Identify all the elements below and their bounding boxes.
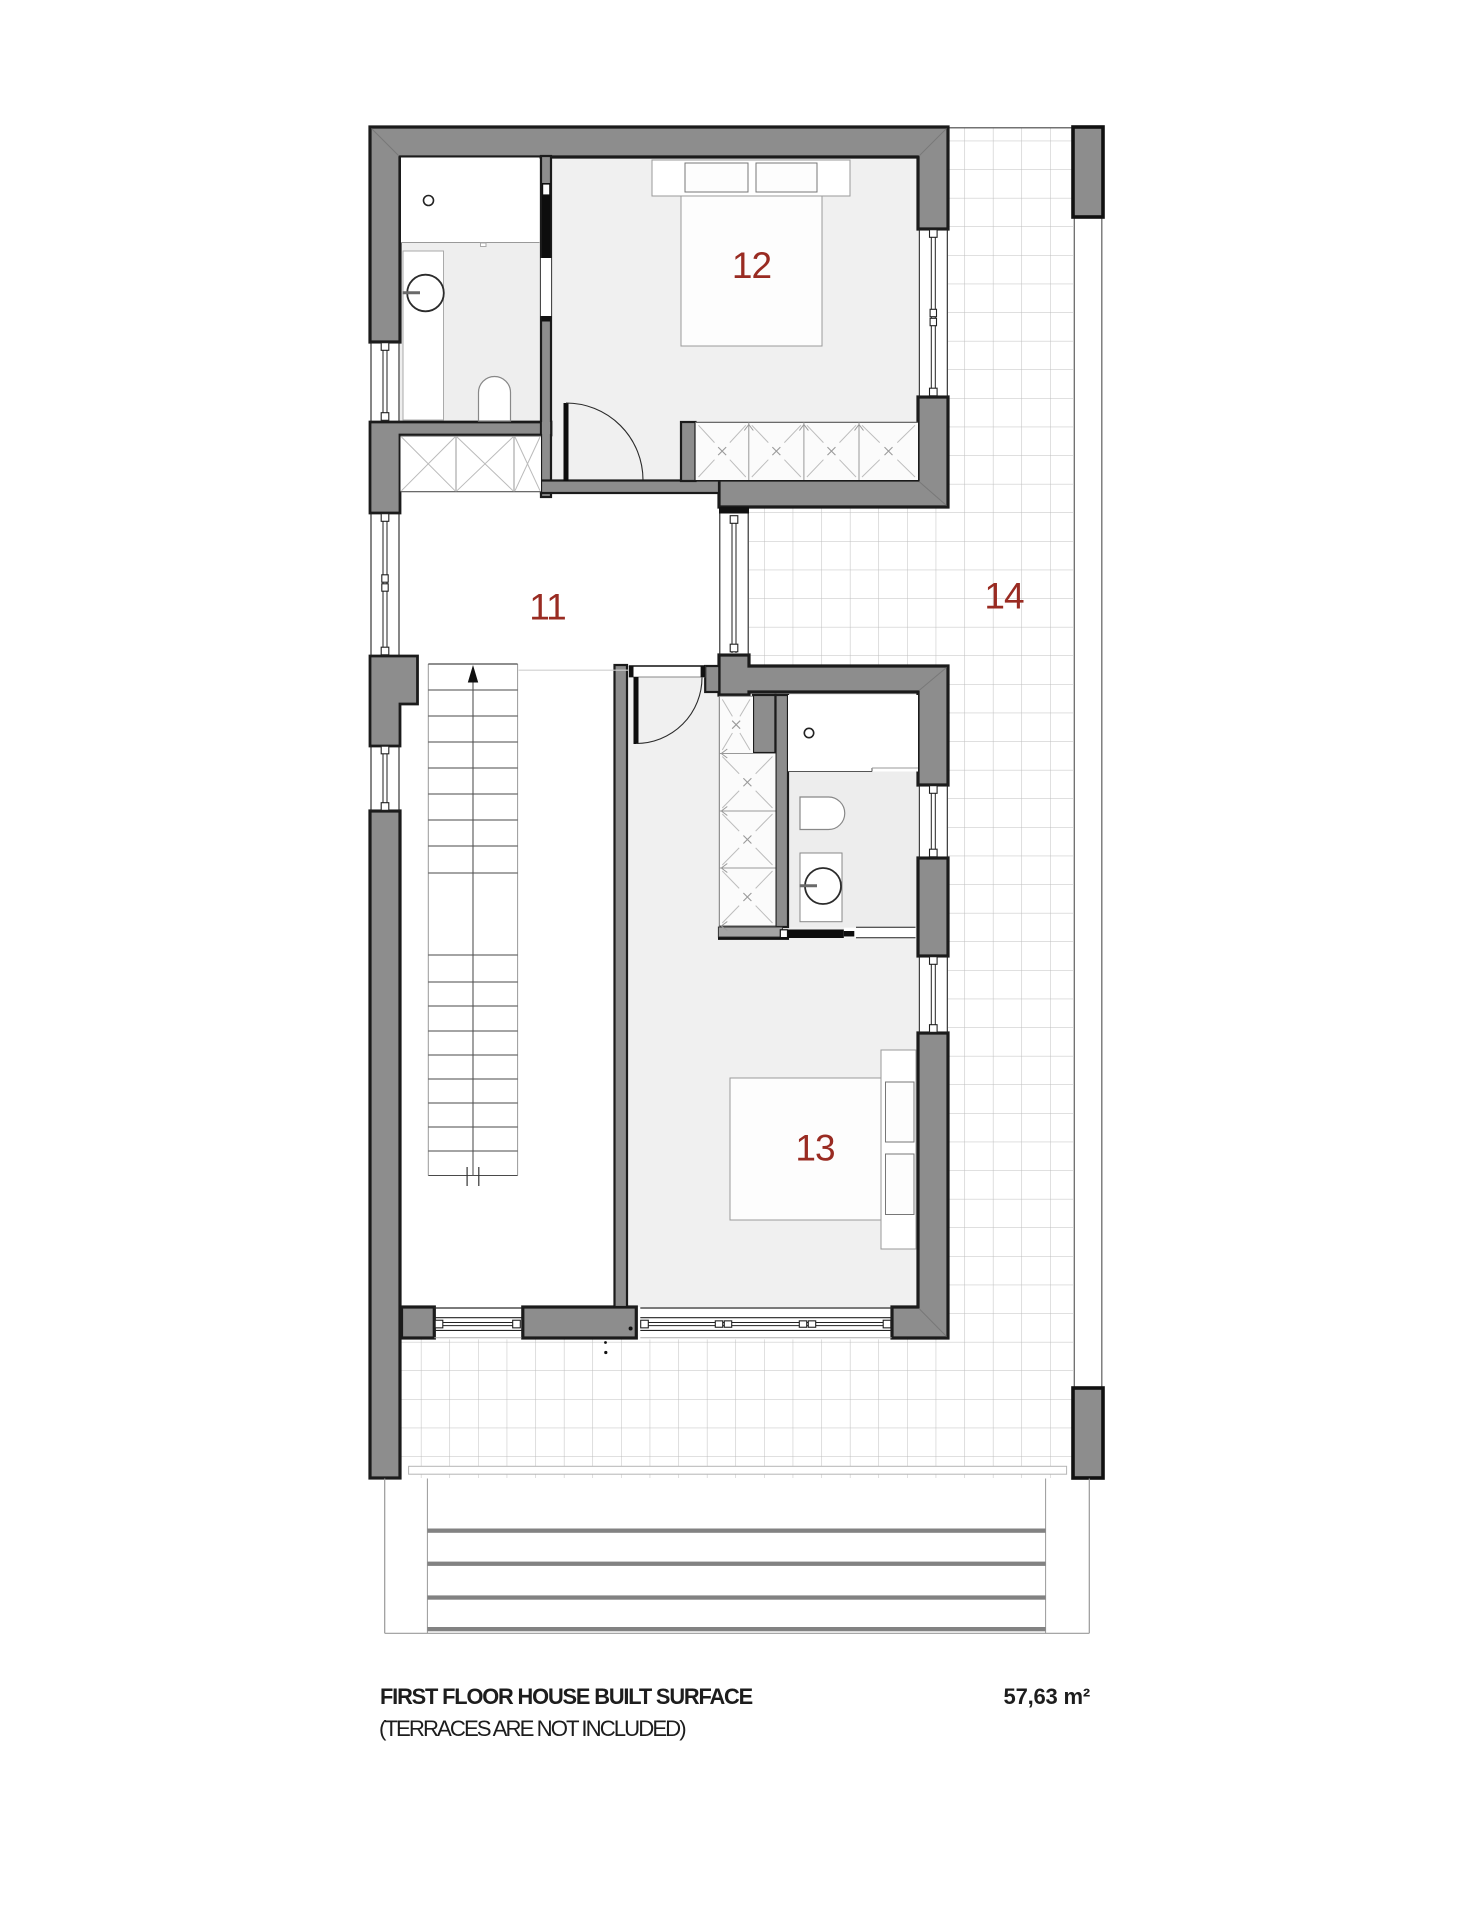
svg-text:14: 14 [984,576,1024,617]
svg-text:13: 13 [795,1128,834,1169]
svg-text:57,63 m²: 57,63 m² [1004,1684,1090,1709]
svg-text:FIRST FLOOR HOUSE BUILT SURFAC: FIRST FLOOR HOUSE BUILT SURFACE [380,1684,753,1709]
svg-text:11: 11 [529,587,565,628]
svg-text:12: 12 [732,245,771,286]
svg-text:(TERRACES ARE NOT INCLUDED): (TERRACES ARE NOT INCLUDED) [379,1716,686,1741]
